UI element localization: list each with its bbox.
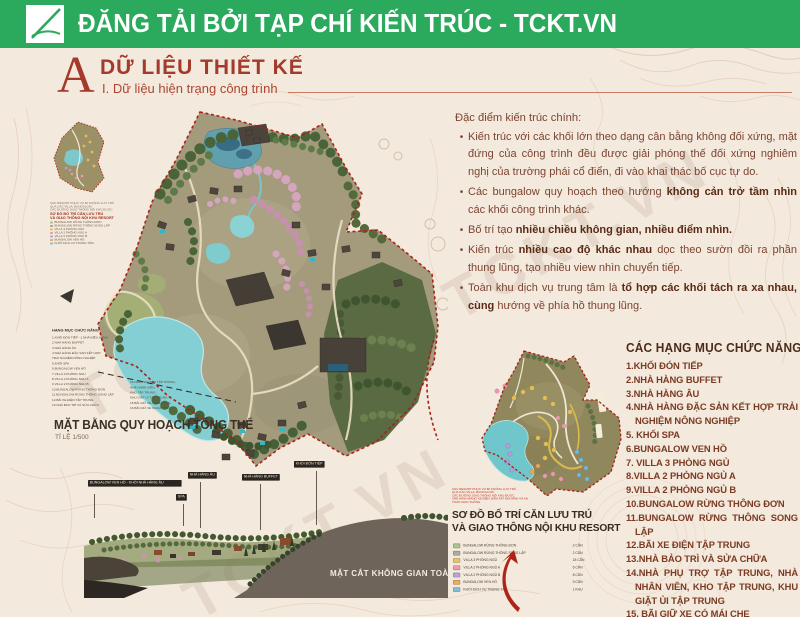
legend-row: VILLA 3 PHÒNG NGỦ18 CĂN xyxy=(453,557,625,564)
section-drop-cap: A xyxy=(57,50,95,102)
publisher-banner: ĐĂNG TẢI BỞI TẠP CHÍ KIẾN TRÚC - TCKT.VN xyxy=(0,0,800,48)
program-item: 8.VILLA 2 PHÒNG NGỦ A xyxy=(626,469,798,483)
inset-legend: BUNGALOW RỪNG THÔNG ĐƠNBUNGALOW RỪNG THÔ… xyxy=(50,221,180,246)
entrance-arrow-icon xyxy=(490,550,524,614)
program-item: 5. KHỐI SPA xyxy=(626,428,798,442)
program-item: 7. VILLA 3 PHÒNG NGỦ xyxy=(626,456,798,470)
inset-label-line2: VÀ GIAO THÔNG NỘI KHU RESORT xyxy=(50,216,180,220)
legend-color-chip xyxy=(453,572,460,577)
note-bullet: •Các bungalow quy hoạch theo hướng không… xyxy=(455,184,797,219)
callout-leader xyxy=(183,504,184,526)
program-item: 13.NHÀ BẢO TRÌ VÀ SỬA CHỮA xyxy=(626,552,798,566)
program-item: 10.BUNGALOW RỪNG THÔNG ĐƠN xyxy=(626,497,798,511)
notes-heading: Đặc điểm kiến trúc chính: xyxy=(455,112,797,124)
program-item: 4.NHÀ HÀNG ĐẶC SẢN KẾT HỢP TRẢI NGHIỆM N… xyxy=(626,400,798,428)
note-bullet: •Toàn khu dịch vụ trung tâm là tổ hợp cá… xyxy=(455,280,797,315)
program-item: 12.BÃI XE ĐIỆN TẬP TRUNG xyxy=(626,538,798,552)
callout-leader xyxy=(200,482,201,528)
program-list-heading: CÁC HẠNG MỤC CHỨC NĂNG xyxy=(626,341,789,355)
inset-caption: KHU RESORT PHỤC VỤ 80 PHÒNG LƯU TRÚQUA C… xyxy=(50,202,180,212)
master-plan-legend: HẠNG MỤC CHỨC NĂNG 1.KHỐI ĐÓN TIẾP - 1.N… xyxy=(52,328,208,416)
legend-color-chip xyxy=(453,543,460,548)
unit-plan-title: SƠ ĐỒ BỐ TRÍ CĂN LƯU TRÚ VÀ GIAO THÔNG N… xyxy=(452,509,620,535)
north-marker xyxy=(60,289,74,303)
legend-column-1: 1.KHỐI ĐÓN TIẾP - 1.NHÀ ĐIỀU HÀNH2.NHÀ H… xyxy=(52,335,114,408)
legend-color-chip xyxy=(453,565,460,570)
publisher-title: ĐĂNG TẢI BỞI TẠP CHÍ KIẾN TRÚC - TCKT.VN xyxy=(78,8,617,39)
master-plan-scale: TỈ LỆ 1/500 xyxy=(55,434,89,441)
legend-row: VILLA 2 PHÒNG NGỦ A6 CĂN xyxy=(453,564,625,571)
program-item: 2.NHÀ HÀNG BUFFET xyxy=(626,373,798,387)
note-bullet: •Bố trí tạo nhiều chiều không gian, nhiề… xyxy=(455,222,797,239)
program-item: 9.VILLA 2 PHÒNG NGỦ B xyxy=(626,483,798,497)
page-title: DỮ LIỆU THIẾT KẾ xyxy=(100,56,304,80)
unit-plan-caption: KHU RESORT PHỤC VỤ 80 PHÒNG LƯU TRÚQUA C… xyxy=(452,488,602,504)
callout-box: NHÀ HÀNG ÂU xyxy=(188,472,217,479)
unit-plan-figure: KHU RESORT PHỤC VỤ 80 PHÒNG LƯU TRÚQUA C… xyxy=(450,346,630,617)
legend-color-chip xyxy=(453,587,460,592)
unit-plan-legend: BUNGALOW RỪNG THÔNG ĐƠN2 CĂNBUNGALOW RỪN… xyxy=(453,542,625,593)
legend-row: BUNGALOW RỪNG THÔNG SONG LẬP2 CĂN xyxy=(453,549,625,556)
title-rule xyxy=(288,92,792,93)
magazine-page: TCKT.VN TCKT.VN TCKT.VN ĐĂNG TẢI BỞI TẠP… xyxy=(0,0,800,617)
unit-plan-artwork xyxy=(450,346,630,496)
legend-row: VILLA 2 PHÒNG NGỦ B8 CĂN xyxy=(453,571,625,578)
note-bullet: •Kiến trúc nhiều cao độ khác nhau dọc th… xyxy=(455,242,797,277)
program-items: 1.KHỐI ĐÓN TIẾP2.NHÀ HÀNG BUFFET3.NHÀ HÀ… xyxy=(626,359,798,617)
program-item: 6.BUNGALOW VEN HỒ xyxy=(626,442,798,456)
section-view-figure: BUNGALOW VEN HỒ - KHỐI NHÀ HÀNG ÂU NHÀ H… xyxy=(84,458,448,616)
legend-column-2: 14.NHÀ PHỤ TRỢ TẬP TRUNG, NHÀ NHÂN VIÊN,… xyxy=(130,380,176,411)
legend-color-chip xyxy=(453,558,460,563)
legend-color-chip xyxy=(453,551,460,556)
architecture-notes: Đặc điểm kiến trúc chính: •Kiến trúc với… xyxy=(455,112,797,318)
program-item: 1.KHỐI ĐÓN TIẾP xyxy=(626,359,798,373)
legend-row: KHỐI DỊCH VỤ TRUNG TÂM1 KHU xyxy=(453,586,625,593)
master-plan-figure: KHU RESORT PHỤC VỤ 80 PHÒNG LƯU TRÚQUA C… xyxy=(40,104,448,480)
callout-box: SPA xyxy=(176,494,187,501)
program-item: 15. BÃI GIỮ XE CÓ MÁI CHE xyxy=(626,607,798,617)
legend-title: HẠNG MỤC CHỨC NĂNG xyxy=(52,328,99,333)
note-bullet: •Kiến trúc với các khối lớn theo dạng câ… xyxy=(455,129,797,181)
legend-row: BUNGALOW VEN HỒ9 CĂN xyxy=(453,578,625,585)
tckt-logo-icon xyxy=(26,5,64,43)
callout-leader xyxy=(94,494,95,518)
master-plan-title: MẶT BẰNG QUY HOẠCH TỔNG THỂ xyxy=(54,418,253,432)
callout-leader xyxy=(316,471,317,525)
legend-color-chip xyxy=(453,580,460,585)
program-item: 14.NHÀ PHỤ TRỢ TẬP TRUNG, NHÀ NHÂN VIÊN,… xyxy=(626,566,798,607)
program-list: CÁC HẠNG MỤC CHỨC NĂNG 1.KHỐI ĐÓN TIẾP2.… xyxy=(626,341,798,617)
callout-box: BUNGALOW VEN HỒ - KHỐI NHÀ HÀNG ÂU xyxy=(88,480,182,487)
program-item: 11.BUNGALOW RỪNG THÔNG SONG LẬP xyxy=(626,511,798,539)
page-subtitle: I. Dữ liệu hiện trạng công trình xyxy=(102,81,278,96)
inset-map-text: KHU RESORT PHỤC VỤ 80 PHÒNG LƯU TRÚQUA C… xyxy=(50,202,180,245)
program-item: 3.NHÀ HÀNG ÂU xyxy=(626,387,798,401)
legend-row: BUNGALOW RỪNG THÔNG ĐƠN2 CĂN xyxy=(453,542,625,549)
callout-box: NHÀ HÀNG BUFFET xyxy=(242,474,280,481)
notes-bullet-list: •Kiến trúc với các khối lớn theo dạng câ… xyxy=(455,129,797,315)
inset-map xyxy=(54,122,104,192)
callout-leader xyxy=(260,484,261,530)
section-artwork xyxy=(84,494,448,614)
callout-box: KHỐI ĐÓN TIẾP xyxy=(294,461,324,468)
